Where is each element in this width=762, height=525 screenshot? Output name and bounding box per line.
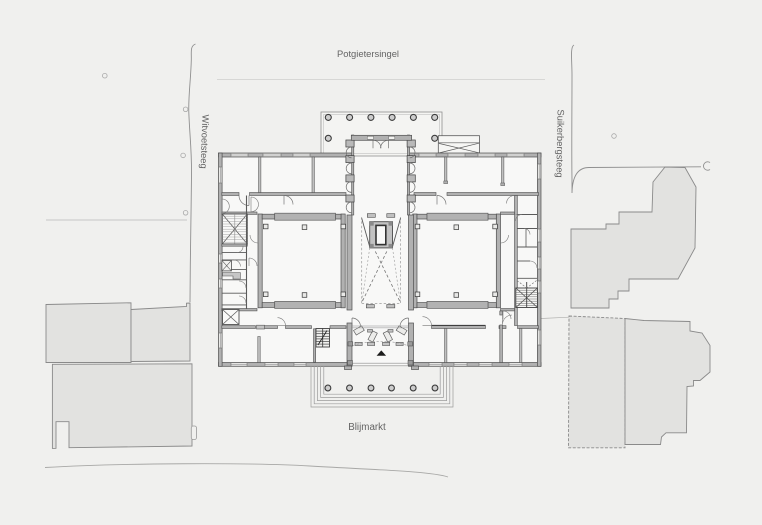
- svg-text:Potgietersingel: Potgietersingel: [337, 48, 399, 59]
- svg-text:Suikerbergsteeg: Suikerbergsteeg: [554, 109, 566, 177]
- svg-text:Witvoetsteeg: Witvoetsteeg: [199, 114, 212, 169]
- svg-text:Blijmarkt: Blijmarkt: [348, 422, 386, 433]
